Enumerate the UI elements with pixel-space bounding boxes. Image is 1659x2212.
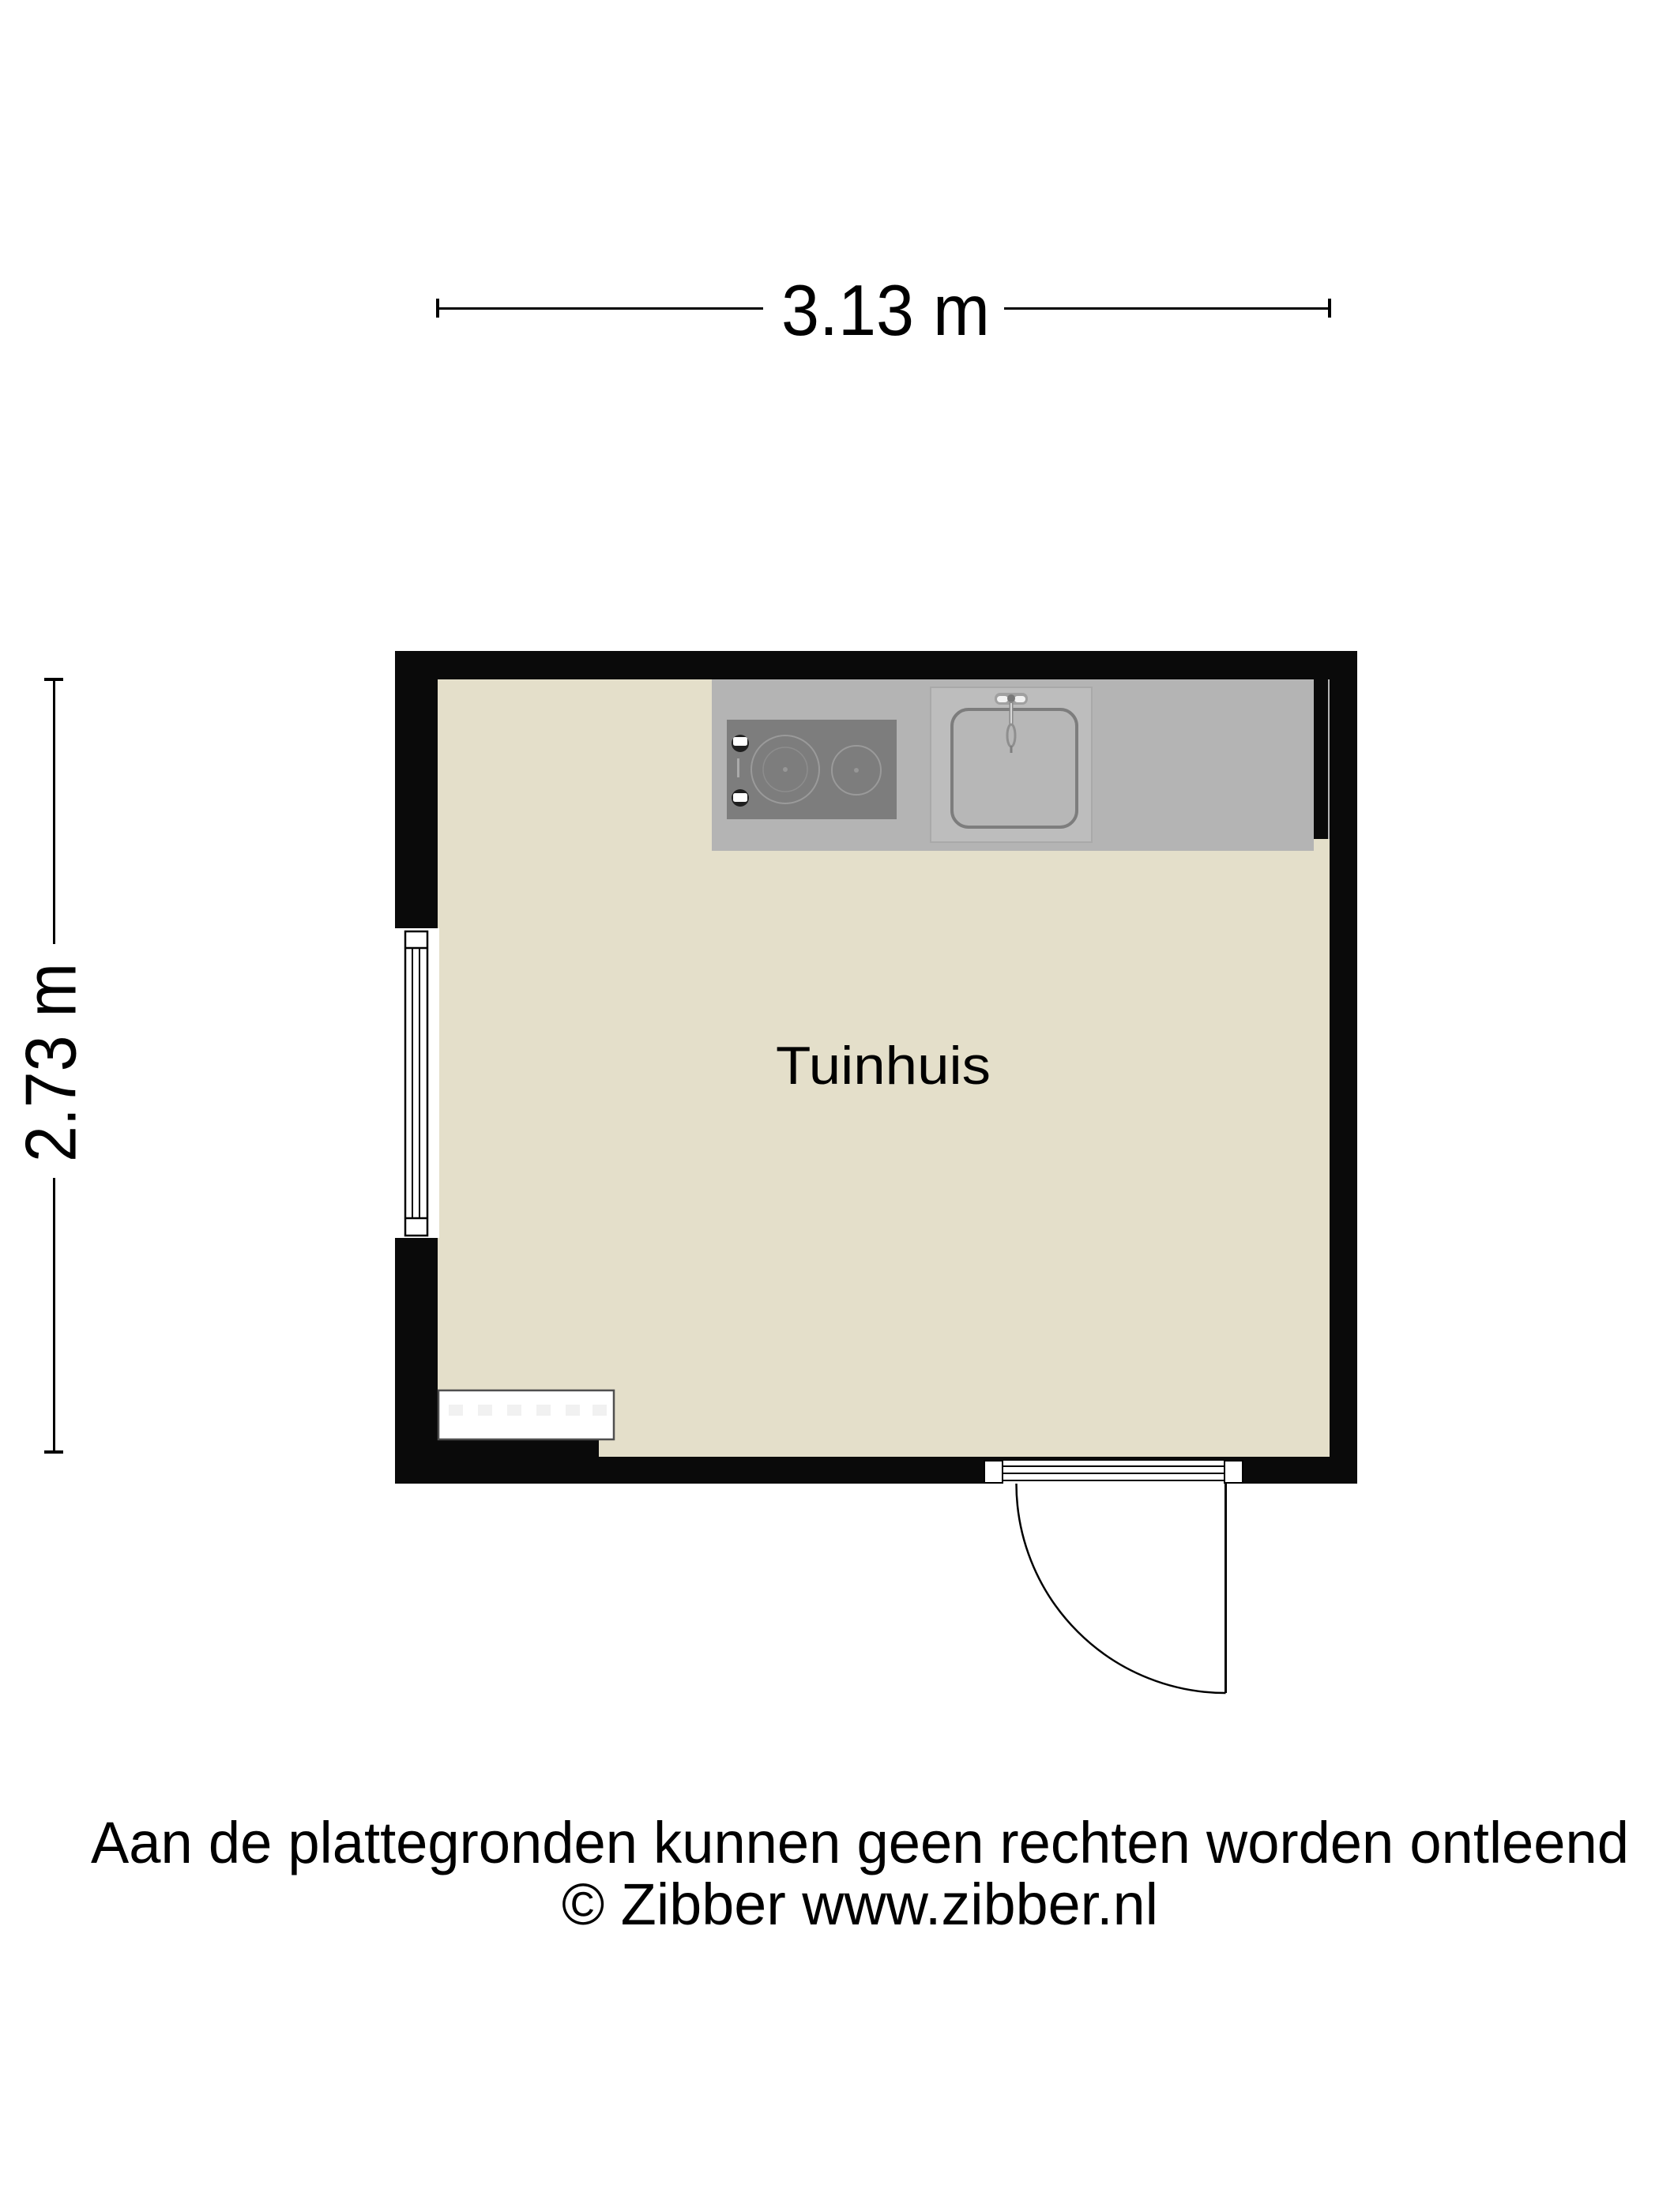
svg-text:© Zibber www.zibber.nl: © Zibber www.zibber.nl (562, 1872, 1158, 1937)
svg-text:Aan de plattegronden kunnen ge: Aan de plattegronden kunnen geen rechten… (91, 1810, 1629, 1875)
svg-text:3.13 m: 3.13 m (781, 271, 990, 351)
svg-text:Tuinhuis: Tuinhuis (776, 1036, 991, 1096)
svg-text:2.73 m: 2.73 m (12, 963, 92, 1162)
